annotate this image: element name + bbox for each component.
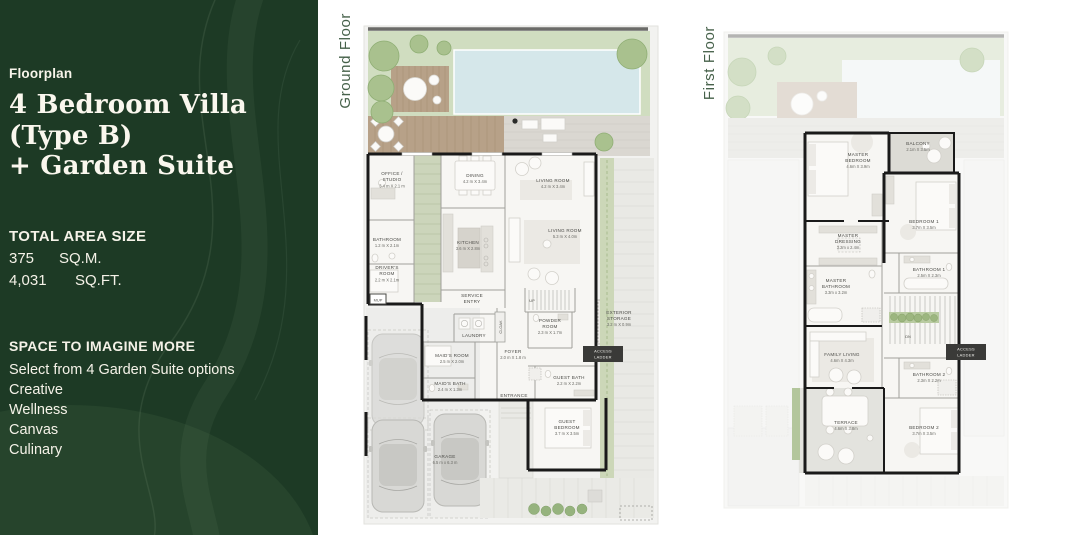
ff-balcony-label: BALCONY	[906, 141, 930, 146]
gf-maids-room-label: MAID'S ROOM	[435, 353, 469, 358]
gf-guest-bath-label: GUEST BATH	[553, 375, 584, 380]
gf-bathroom-label: BATHROOM	[373, 237, 401, 242]
area-row-sqft: 4,031 SQ.FT.	[9, 272, 298, 289]
gf-service-entry-label: SERVICE	[461, 293, 483, 298]
area-unit-sqm: SQ.M.	[59, 250, 102, 267]
gf-bathroom-dims: 1.2 m X 2.1m	[375, 243, 400, 248]
gf-foyer-dims: 2.0 m X 1.8 m	[500, 355, 526, 360]
ff-dn-label: DN	[905, 334, 911, 339]
ff-master-bath-dims: 3.3m x 3.2m	[825, 290, 848, 295]
gf-dining-label: DINING	[466, 173, 484, 178]
ff-bathroom2-label: BATHROOM 2	[913, 372, 946, 377]
gf-access-ladder-label2: LADDER	[594, 355, 612, 360]
gf-living-lower-dims: 5.3 m X 4.0m	[553, 234, 578, 239]
gf-living-upper-label: LIVING ROOM	[536, 178, 569, 183]
first-floor-plan: BALCONY 2.1m X 3.5m MASTER BEDROOM 4.6m …	[722, 26, 1010, 512]
gf-garage-dims: 6.5 m x 6.3 m	[433, 460, 458, 465]
ff-dressing-dims: 3.2m x 2.4m	[837, 245, 860, 250]
ff-access-ladder-label: ACCESS	[957, 347, 975, 352]
gf-drivers-label2: ROOM	[379, 271, 394, 276]
area-unit-sqft: SQ.FT.	[75, 272, 122, 289]
area-value-sqm: 375	[9, 250, 59, 267]
gf-guest-bedroom-dims: 3.7 m X 3.5m	[555, 431, 580, 436]
garden-suite-block: SPACE TO IMAGINE MORE Select from 4 Gard…	[9, 338, 298, 458]
area-value-sqft: 4,031	[9, 272, 75, 289]
gf-office-label: OFFICE /	[381, 171, 403, 176]
ff-master-bath-label2: BATHROOM	[822, 284, 850, 289]
ff-family-living-label: FAMILY LIVING	[824, 352, 860, 357]
ff-master-bedroom-dims: 4.6m X 3.9m	[846, 164, 870, 169]
gf-ext-storage-dims: 3.2 m X 0.9m	[607, 322, 632, 327]
gf-ext-storage-label: EXTERIOR	[606, 310, 632, 315]
page-title: 4 Bedroom Villa (Type B) + Garden Suite	[9, 90, 298, 182]
gf-access-ladder-label: ACCESS	[594, 349, 612, 354]
total-area-heading: TOTAL AREA SIZE	[9, 228, 298, 245]
gf-living-upper-dims: 4.2 m X 3.4m	[541, 184, 566, 189]
gf-deck-band	[368, 116, 504, 156]
title-line-3: + Garden Suite	[9, 151, 298, 182]
gf-maids-bath-label: MAID'S BATH	[434, 381, 465, 386]
ff-terrace-dims: 4.6m X 3.8m	[834, 426, 858, 431]
space-line-canvas: Canvas	[9, 422, 298, 438]
ff-master-bath-label: MASTER	[826, 278, 847, 283]
gf-cloak-label: CLOAK	[498, 320, 503, 334]
gf-office-dims: 3.4 m X 2.1 m	[379, 184, 405, 189]
space-line-intro: Select from 4 Garden Suite options	[9, 362, 298, 378]
gf-guest-bedroom-label: GUEST	[558, 419, 575, 424]
gf-pool-deck	[391, 66, 449, 112]
ff-bedroom2-label: BEDROOM 2	[909, 425, 939, 430]
gf-maids-bath-dims: 2.4 m X 1.3m	[438, 387, 463, 392]
ff-bedroom2-dims: 3.7m X 3.5m	[912, 431, 936, 436]
ff-bathroom2-dims: 2.3m X 2.2m	[917, 378, 941, 383]
gf-dining-dims: 4.2 m X 3.4m	[463, 179, 488, 184]
ff-balcony-dims: 2.1m X 3.5m	[906, 147, 930, 152]
gf-guest-bath-dims: 2.2 m X 2.2m	[557, 381, 582, 386]
gf-powder-dims: 2.3 m X 1.7m	[538, 330, 563, 335]
title-line-2: (Type B)	[9, 121, 298, 152]
ff-dressing-label: MASTER	[838, 233, 859, 238]
gf-powder-label2: ROOM	[542, 324, 557, 329]
space-line-wellness: Wellness	[9, 402, 298, 418]
ff-master-bedroom-label: MASTER	[848, 152, 869, 157]
gf-foyer-label: FOYER	[504, 349, 522, 354]
space-line-culinary: Culinary	[9, 442, 298, 458]
gf-terrace-lamp	[512, 118, 517, 123]
gf-car-garage-left	[369, 420, 427, 512]
gf-drivers-label: DRIVER'S	[375, 265, 398, 270]
gf-maids-room-dims: 2.5 m X 2.0m	[440, 359, 465, 364]
gf-planted-strip	[414, 154, 441, 302]
gf-guest-bedroom-label2: BEDROOM	[554, 425, 580, 430]
gf-ext-storage-label2: STORAGE	[607, 316, 631, 321]
gf-car-driveway	[369, 334, 427, 426]
gf-drivers-dims: 2.2 m X 2.1m	[375, 278, 400, 283]
gf-office-label2: STUDIO	[383, 177, 402, 182]
gf-mup-label: MUP	[374, 298, 383, 303]
gf-windows	[402, 153, 572, 156]
gf-laundry-label: LAUNDRY	[462, 333, 486, 338]
gf-service-entry-label2: ENTRY	[464, 299, 481, 304]
gf-entrance-label: ENTRANCE	[500, 393, 527, 398]
gf-powder-label: POWDER	[539, 318, 562, 323]
ff-terrace-planter	[792, 388, 800, 460]
ff-bathroom1-dims: 2.5m X 2.3m	[917, 273, 941, 278]
area-row-sqm: 375 SQ.M.	[9, 250, 298, 267]
ff-dressing-label2: DRESSING	[835, 239, 861, 244]
info-panel: Floorplan 4 Bedroom Villa (Type B) + Gar…	[0, 0, 318, 535]
ff-bathroom1-label: BATHROOM 1	[913, 267, 946, 272]
ff-access-ladder-label2: LADDER	[957, 353, 975, 358]
ground-floor-label: Ground Floor	[337, 13, 354, 109]
gf-up-label: UP	[529, 298, 535, 303]
gf-living-lower-label: LIVING ROOM	[548, 228, 581, 233]
first-floor-label: First Floor	[701, 26, 718, 100]
space-line-creative: Creative	[9, 382, 298, 398]
total-area-block: TOTAL AREA SIZE 375 SQ.M. 4,031 SQ.FT.	[9, 228, 298, 289]
title-line-1: 4 Bedroom Villa	[9, 90, 298, 121]
gf-kitchen-label: KITCHEN	[457, 240, 479, 245]
ff-terrace-label: TERRACE	[834, 420, 858, 425]
gf-rear-paving	[480, 478, 654, 520]
ff-bedroom1-dims: 3.7m X 3.5m	[912, 225, 936, 230]
space-heading: SPACE TO IMAGINE MORE	[9, 338, 298, 354]
gf-garage-label: GARAGE	[434, 454, 455, 459]
gf-outdoor-lounge	[504, 116, 650, 156]
gf-kitchen-dims: 3.6 m X 2.8m	[456, 246, 481, 251]
ground-floor-plan: OFFICE / STUDIO 3.4 m X 2.1 m BATHROOM 1…	[362, 12, 660, 528]
ff-family-living-dims: 4.6m X 4.3m	[830, 358, 854, 363]
floorplan-eyebrow: Floorplan	[9, 66, 298, 81]
floorplan-page: Floorplan 4 Bedroom Villa (Type B) + Gar…	[0, 0, 1082, 535]
ff-master-bedroom-label2: BEDROOM	[845, 158, 871, 163]
gf-swimming-pool	[454, 50, 640, 114]
ff-bedroom1-label: BEDROOM 1	[909, 219, 939, 224]
